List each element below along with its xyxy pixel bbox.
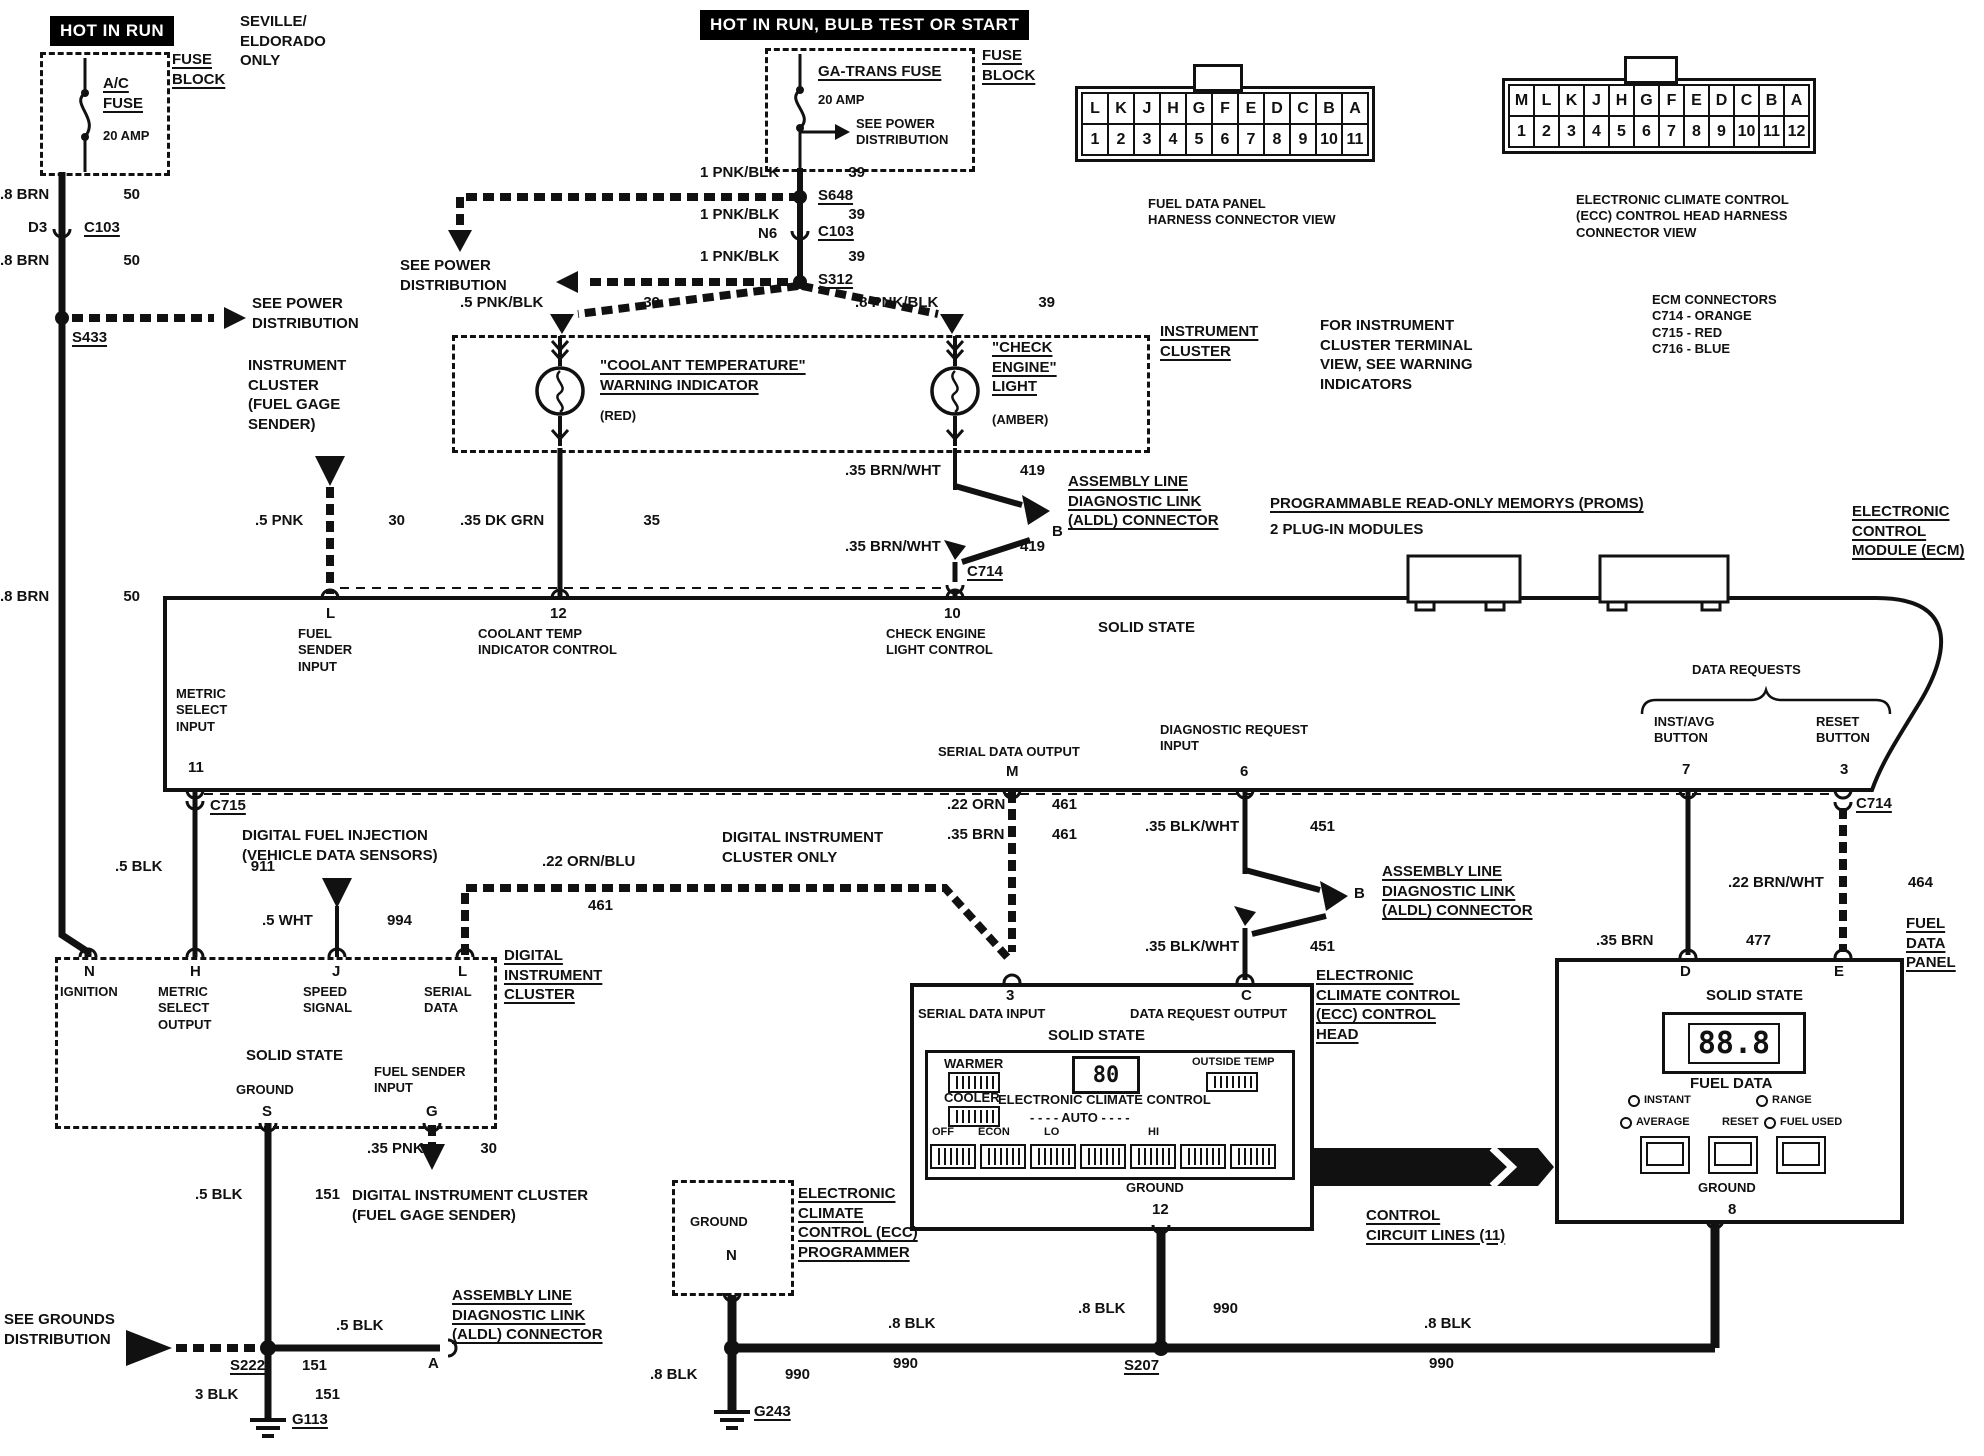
connector-cell: 3 [1558,115,1585,148]
connector-cell: D [1263,92,1291,125]
connector-cell: 9 [1708,115,1735,148]
connector-cell: F [1211,92,1239,125]
aldl-connector-label-2: ASSEMBLY LINE DIAGNOSTIC LINK (ALDL) CON… [1382,862,1533,921]
wire-label: 1 PNK/BLK39 [700,206,865,223]
programmer-ground: GROUND [690,1214,748,1230]
connector-cell: E [1237,92,1265,125]
wire-label: .5 WHT994 [262,912,412,929]
connector-cell: G [1185,92,1213,125]
programmer-term-n: N [726,1246,737,1266]
arrow-right-s433 [224,307,246,329]
dfi-label: DIGITAL FUEL INJECTION (VEHICLE DATA SEN… [242,826,438,865]
wire-label: .8 PNK/BLK39 [855,294,1055,311]
connector-cell: B [1315,92,1343,125]
g243-ground-icon [714,1412,750,1428]
connector-cell: 1 [1081,123,1109,156]
banner-hot-in-run-bulb: HOT IN RUN, BULB TEST OR START [700,10,1029,40]
connector-cell: 12 [1783,115,1810,148]
aldl-b-terminal: B [1052,522,1063,542]
connector-cell: K [1107,92,1135,125]
connector-cell: B [1758,84,1785,117]
ecm-term-6: 6 [1240,762,1248,782]
connector-cell: 4 [1583,115,1610,148]
ecc-head-label: ELECTRONIC CLIMATE CONTROL (ECC) CONTROL… [1316,966,1460,1044]
arrow-down-dfi [322,878,352,908]
c715-label: C715 [210,796,246,816]
fdp-instant: INSTANT [1644,1094,1691,1108]
connector-cell: F [1658,84,1685,117]
dic-ignition: IGNITION [60,984,118,1000]
aldl-connector-label-3: ASSEMBLY LINE DIAGNOSTIC LINK (ALDL) CON… [452,1286,603,1345]
ecm-term-11: 11 [188,758,204,778]
connector-cell: 6 [1633,115,1660,148]
wire-label: .8 BLK990 [1078,1300,1238,1317]
fuel-data-panel-side-label: FUEL DATA PANEL [1906,914,1956,973]
c714-label-right: C714 [1856,794,1892,814]
dic-term-s: S [262,1102,272,1122]
banner-hot-in-run: HOT IN RUN [50,16,174,46]
s222-label: S222 [230,1356,265,1376]
wire-num-ornblu: 461 [588,896,613,916]
wire-label-990d: .8 BLK [1424,1314,1472,1334]
fuse-block-1-box [40,52,170,176]
connector-cell: M [1508,84,1535,117]
arrow-down-1 [448,230,472,252]
c103b-label: C103 [818,222,854,242]
ecc-mode-button[interactable] [930,1144,976,1169]
arrow-right-b1 [1022,495,1050,525]
arrow-down-3 [940,314,964,334]
connector-cell: H [1608,84,1635,117]
fuel-gage-sender-label: INSTRUMENT CLUSTER (FUEL GAGE SENDER) [248,356,346,434]
ecc-mode-button[interactable] [1030,1144,1076,1169]
splice-s433 [55,311,69,325]
instrument-cluster-label: INSTRUMENT CLUSTER [1160,322,1258,361]
c103-label: C103 [84,218,120,238]
control-circuit-lines-label: CONTROL CIRCUIT LINES (11) [1366,1206,1505,1245]
ecc-mode-button[interactable] [980,1144,1026,1169]
ecm-term-m: M [1006,762,1019,782]
connector-cell: 6 [1211,123,1239,156]
fdp-reset-button[interactable] [1708,1136,1758,1174]
fdp-range: RANGE [1772,1094,1812,1108]
check-engine-label: "CHECK ENGINE" LIGHT [992,338,1057,397]
wire-419-zig1 [955,486,1022,505]
dic-term-h: H [190,962,201,982]
ecm-module-label: ELECTRONIC CONTROL MODULE (ECM) [1852,502,1965,561]
splice-s207 [1153,1340,1169,1356]
connector-cell: 8 [1683,115,1710,148]
fdp-connector-caption: FUEL DATA PANEL HARNESS CONNECTOR VIEW [1148,196,1336,229]
dic-term-n: N [84,962,95,982]
ecc-econ: ECON [978,1126,1010,1140]
dic-fuel-sender: FUEL SENDER INPUT [374,1064,466,1097]
connector-cell: J [1583,84,1610,117]
wire-label: .35 BLK/WHT451 [1145,818,1335,835]
ecm-term-6-label: DIAGNOSTIC REQUEST INPUT [1160,722,1308,755]
dic-serial: SERIAL DATA [424,984,472,1017]
wire-label: .35 BRN461 [947,826,1077,843]
outside-temp-button[interactable] [1206,1072,1258,1092]
fdp-term-d: D [1680,962,1691,982]
fdp-reset: RESET [1722,1116,1759,1130]
ecc-mode-button[interactable] [1130,1144,1176,1169]
wire-label: .5 PNK30 [255,512,405,529]
ecc-title: ELECTRONIC CLIMATE CONTROL [998,1092,1211,1108]
ecm-term-3: 3 [1840,760,1848,780]
wire-label: .35 BRN477 [1596,932,1771,949]
dic-sender-note: DIGITAL INSTRUMENT CLUSTER (FUEL GAGE SE… [352,1186,588,1225]
ecc-temp-display: 80 [1072,1056,1140,1094]
connector-cell: C [1733,84,1760,117]
ecm-term-11-label: METRIC SELECT INPUT [176,686,227,735]
dic-solid-state: SOLID STATE [246,1046,343,1066]
connector-cell: K [1558,84,1585,117]
ecm-term-7: 7 [1682,760,1690,780]
fdp-term-8: 8 [1728,1200,1736,1220]
ecc-serial-in: SERIAL DATA INPUT [918,1006,1045,1022]
connector-cell: A [1341,92,1369,125]
connector-number-row: 123456789101112 [1508,115,1810,148]
ecc-auto-row: - - - - AUTO - - - - [1030,1110,1130,1126]
fuse1-name: A/C FUSE [103,74,143,113]
ecc-connector-view: MLKJHGFEDCBA 123456789101112 [1502,78,1816,154]
connector-cell: D [1708,84,1735,117]
ecc-cooler: COOLER [944,1090,1000,1106]
wire-label: .8 BRN50 [0,252,140,269]
connector-cell: 4 [1159,123,1187,156]
connector-letter-row: LKJHGFEDCBA [1081,92,1369,125]
wire-label: .22 BRN/WHT464 [1728,874,1933,891]
wire-num-990d: 990 [1429,1354,1454,1374]
s207-label: S207 [1124,1356,1159,1376]
wire-label: .35 BRN/WHT419 [845,462,1045,479]
connector-cell: L [1081,92,1109,125]
wire-label-blk5: .5 BLK [336,1316,384,1336]
wire-451-zig2 [1252,916,1326,934]
connector-cell: 7 [1237,123,1265,156]
connector-cell: L [1533,84,1560,117]
proms-title: PROGRAMMABLE READ-ONLY MEMORYS (PROMS) [1270,494,1644,514]
fdp-fuel-used-button[interactable] [1776,1136,1826,1174]
arrow-down-sender [315,456,345,486]
wire-label-ornblu: .22 ORN/BLU [542,852,635,872]
ecm-term-3-label: RESET BUTTON [1816,714,1870,747]
ecc-term-c: C [1241,986,1252,1006]
wire-label: .5 PNK/BLK39 [460,294,660,311]
ecm-term-m-label: SERIAL DATA OUTPUT [938,744,1080,760]
fuse2-amp: 20 AMP [818,92,864,108]
cluster-terminal-note: FOR INSTRUMENT CLUSTER TERMINAL VIEW, SE… [1320,316,1473,394]
wire-label: .5 BLK151 [195,1186,340,1203]
see-power-dist-1: SEE POWER DISTRIBUTION [252,294,359,333]
fuse1-amp: 20 AMP [103,128,149,144]
ecc-off: OFF [932,1126,954,1140]
ecc-warmer: WARMER [944,1056,1003,1072]
data-requests-brace [1642,690,1890,714]
connector-letter-row: MLKJHGFEDCBA [1508,84,1810,117]
dic-term-l: L [458,962,467,982]
splice-s222 [260,1340,276,1356]
dic-metric: METRIC SELECT OUTPUT [158,984,211,1033]
ecc-data-req: DATA REQUEST OUTPUT [1130,1006,1287,1022]
wire-label: .8 BLK990 [650,1366,810,1383]
see-grounds-note: SEE GROUNDS DISTRIBUTION [4,1310,115,1349]
g113-ground-icon [250,1420,286,1436]
arrow-left-1 [556,271,578,293]
prom-module-1 [1408,556,1520,602]
connector-cell: A [1783,84,1810,117]
d3-label: D3 [28,218,47,238]
s648-label: S648 [818,186,853,206]
fdp-average: AVERAGE [1636,1116,1690,1130]
ecc-mode-button[interactable] [1230,1144,1276,1169]
wire-label: .35 DK GRN35 [460,512,660,529]
ecm-term-10: 10 [944,604,961,624]
data-requests-label: DATA REQUESTS [1692,662,1801,678]
ecm-solid-state: SOLID STATE [1098,618,1195,638]
ecc-term-3: 3 [1006,986,1014,1006]
wire-label: .8 BRN50 [0,588,140,605]
connector-cell: 5 [1185,123,1213,156]
fdp-ground: GROUND [1698,1180,1756,1196]
wire-num-990b: 990 [893,1354,918,1374]
arrow-down-451 [1234,906,1256,926]
ecc-hi: HI [1148,1126,1159,1140]
wire-label: 1 PNK/BLK39 [700,164,865,181]
connector-cell: E [1683,84,1710,117]
wire-label: 3 BLK151 [195,1386,340,1403]
aldl-b-terminal-2: B [1354,884,1365,904]
connector-cell: 11 [1758,115,1785,148]
wire-label: .8 BRN50 [0,186,140,203]
ecm-term-12-label: COOLANT TEMP INDICATOR CONTROL [478,626,617,659]
ecc-outside-temp: OUTSIDE TEMP [1192,1056,1275,1070]
arrow-down-2 [550,314,574,334]
g113-label: G113 [292,1410,328,1430]
wiring-diagram: HOT IN RUN HOT IN RUN, BULB TEST OR STAR… [0,0,1984,1456]
wire-left-rail [62,172,88,957]
fdp-term-e: E [1834,962,1844,982]
dic-label: DIGITAL INSTRUMENT CLUSTER [504,946,602,1005]
see-power-dist-2: SEE POWER DISTRIBUTION [400,256,507,295]
coolant-color: (RED) [600,408,636,424]
connector-cell: 8 [1263,123,1291,156]
c714-label-top: C714 [967,562,1003,582]
fuel-display: 88.8 [1662,1012,1806,1074]
s312-label: S312 [818,270,853,290]
connector-cell: 9 [1289,123,1317,156]
seville-note: SEVILLE/ ELDORADO ONLY [240,12,326,71]
fuse2-block-label: FUSE BLOCK [982,46,1035,85]
fuel-data-panel-connector-view: LKJHGFEDCBA 1234567891011 [1075,86,1375,162]
ecm-term-12: 12 [550,604,567,624]
fuse2-name: GA-TRANS FUSE [818,62,941,82]
fuse1-block-label: FUSE BLOCK [172,50,225,89]
wire-451-zig1 [1245,870,1320,890]
fdp-instant-button[interactable] [1640,1136,1690,1174]
connector-cell: J [1133,92,1161,125]
ecm-term-l-label: FUEL SENDER INPUT [298,626,352,675]
wire-label: 1 PNK/BLK39 [700,248,865,265]
ecm-term-7-label: INST/AVG BUTTON [1654,714,1714,747]
splice-s648 [793,190,807,204]
fdp-title: FUEL DATA [1690,1074,1773,1094]
connector-cell: 10 [1315,123,1343,156]
connector-cell: 7 [1658,115,1685,148]
arrow-right-grounds [126,1330,172,1366]
aldl-a-terminal: A [428,1354,439,1374]
ecc-term-12: 12 [1152,1200,1169,1220]
fdp-solid-state: SOLID STATE [1706,986,1803,1006]
dic-term-g: G [426,1102,438,1122]
fuse2-see-power: SEE POWER DISTRIBUTION [856,116,948,149]
connector-number-row: 1234567891011 [1081,123,1369,156]
connector-cell: 11 [1341,123,1369,156]
connector-cell: G [1633,84,1660,117]
wire-label: .35 PNK30 [367,1140,497,1157]
ecm-term-10-label: CHECK ENGINE LIGHT CONTROL [886,626,993,659]
connector-cell: H [1159,92,1187,125]
connector-cell: 10 [1733,115,1760,148]
ecc-mode-button[interactable] [1180,1144,1226,1169]
n6-label: N6 [758,224,777,244]
ecc-mode-button[interactable] [1080,1144,1126,1169]
connector-cell: 3 [1133,123,1161,156]
g243-label: G243 [754,1402,791,1422]
wire-label-990b: .8 BLK [888,1314,936,1334]
ecc-lo: LO [1044,1126,1059,1140]
wire-label: .35 BRN/WHT419 [845,538,1045,555]
check-engine-color: (AMBER) [992,412,1048,428]
wire-label: .35 BLK/WHT451 [1145,938,1335,955]
splice-s312 [793,275,807,289]
dic-term-j: J [332,962,340,982]
connector-cell: 5 [1608,115,1635,148]
dic-ground: GROUND [236,1082,294,1098]
connector-cell: 2 [1533,115,1560,148]
aldl-connector-label-1: ASSEMBLY LINE DIAGNOSTIC LINK (ALDL) CON… [1068,472,1219,531]
ecm-connectors-note: ECM CONNECTORS C714 - ORANGE C715 - RED … [1652,292,1777,357]
ecc-connector-caption: ELECTRONIC CLIMATE CONTROL (ECC) CONTROL… [1576,192,1789,241]
ecm-band-outline [165,598,1941,790]
connector-cell: 1 [1508,115,1535,148]
dic-only-note: DIGITAL INSTRUMENT CLUSTER ONLY [722,828,883,867]
control-circuit-band [1312,1148,1554,1186]
coolant-indicator-label: "COOLANT TEMPERATURE" WARNING INDICATOR [600,356,806,395]
s433-label: S433 [72,328,107,348]
prom-module-2 [1600,556,1728,602]
proms-subtitle: 2 PLUG-IN MODULES [1270,520,1423,540]
cooler-button[interactable] [948,1106,1000,1127]
connector-cell: C [1289,92,1317,125]
s222-circuit: 151 [302,1356,327,1376]
connector-cell: 2 [1107,123,1135,156]
programmer-label: ELECTRONIC CLIMATE CONTROL (ECC) PROGRAM… [798,1184,918,1262]
ecc-ground: GROUND [1126,1180,1184,1196]
ecc-solid-state: SOLID STATE [1048,1026,1145,1046]
arrow-right-b2 [1320,881,1348,911]
dic-speed: SPEED SIGNAL [303,984,352,1017]
ecc-programmer-box [672,1180,794,1296]
ecm-term-l: L [326,604,335,624]
fdp-fuel-used: FUEL USED [1780,1116,1842,1130]
wire-label: .22 ORN461 [947,796,1077,813]
